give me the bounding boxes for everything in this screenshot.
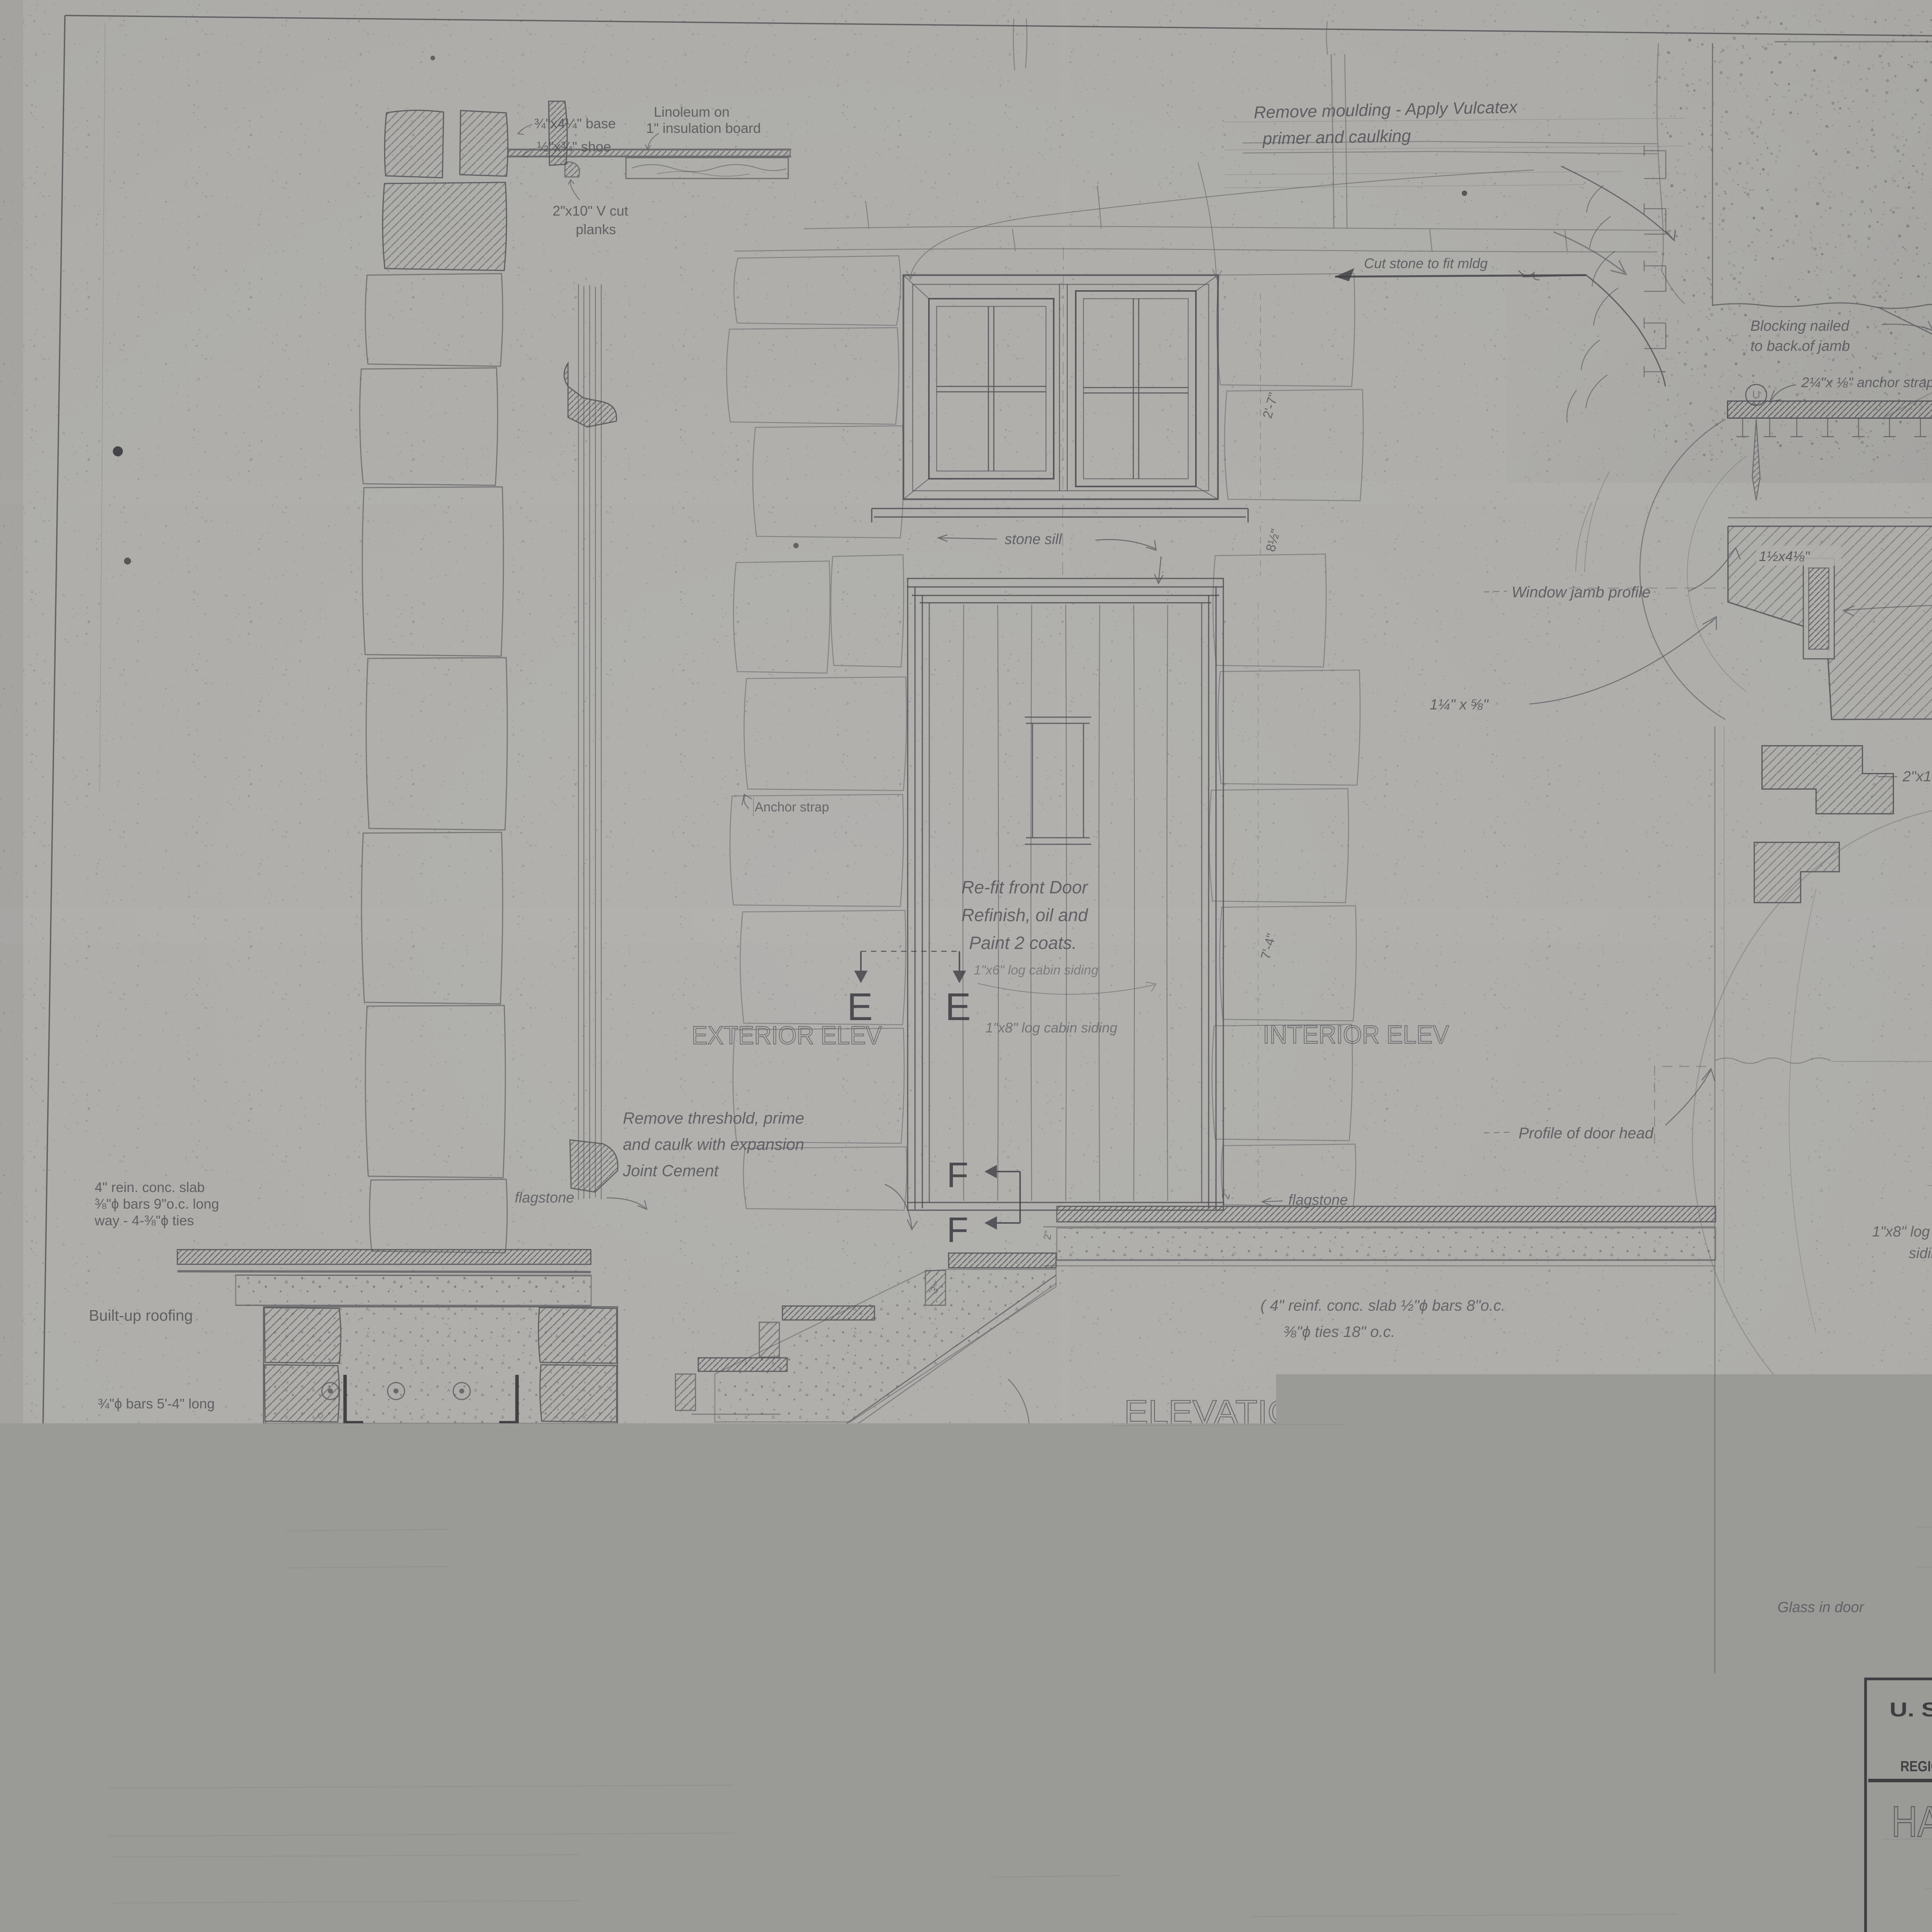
svg-text:Anchor strap: Anchor strap (755, 800, 829, 815)
svg-text:1¼" x ⅝": 1¼" x ⅝" (1430, 697, 1489, 713)
svg-text:PLAN: PLAN (1000, 1836, 1093, 1884)
svg-text:2"x1¼" oak strip: 2"x1¼" oak strip (1902, 769, 1932, 785)
svg-text:½"x¾" shoe: ½"x¾" shoe (537, 139, 611, 155)
svg-text:2" 6¾" 6¾" 2": 2" 6¾" 6¾" 2" (324, 1429, 395, 1442)
svg-text:siding: siding (1909, 1245, 1932, 1262)
svg-text:○: ○ (317, 1409, 324, 1422)
svg-text:INTERIOR ELEV: INTERIOR ELEV (1263, 1020, 1449, 1049)
svg-text:(SOUTH ELEVATION): (SOUTH ELEVATION) (291, 1868, 435, 1893)
svg-text:6" concrete slab reinf. 6-⅝"ϕ: 6" concrete slab reinf. 6-⅝"ϕ (678, 1460, 862, 1476)
svg-text:primer and caulking: primer and caulking (1262, 126, 1411, 148)
svg-text:1½": 1½" (1607, 1826, 1620, 1847)
svg-text:5/16"hole: 5/16"hole (1523, 1830, 1578, 1845)
svg-text:Linoleum on: Linoleum on (654, 104, 730, 120)
svg-text:7": 7" (377, 1462, 387, 1475)
svg-text:2"x10" V cut: 2"x10" V cut (553, 203, 628, 219)
svg-text:EXTERIOR ELEV: EXTERIOR ELEV (692, 1021, 882, 1049)
svg-text:Refinish, oil and: Refinish, oil and (961, 905, 1088, 925)
svg-text:7'-0" to fin. floor: 7'-0" to fin. floor (561, 1556, 575, 1642)
svg-text:6"x6"x⅜"x4'-8" angle: 6"x6"x⅜"x4'-8" angle (100, 1428, 229, 1444)
svg-text:ANCHOR STRAP DETAIL: ANCHOR STRAP DETAIL (1268, 1917, 1660, 1932)
svg-text:2¼"x ⅛" anchor strap: 2¼"x ⅛" anchor strap (1801, 374, 1932, 390)
svg-text:F: F (947, 1155, 968, 1195)
svg-text:1½x4⅛": 1½x4⅛" (1759, 548, 1810, 564)
svg-text:detail for: detail for (1140, 1616, 1194, 1632)
svg-text:moulding: moulding (1140, 1633, 1196, 1649)
svg-text:4" rein. conc. slab: 4" rein. conc. slab (95, 1179, 205, 1195)
svg-text:7": 7" (263, 1462, 273, 1475)
svg-text:1" insulation board: 1" insulation board (646, 120, 761, 136)
svg-text:1'-3": 1'-3" (1364, 1816, 1393, 1832)
svg-text:¾"x4¼" base: ¾"x4¼" base (534, 116, 616, 131)
svg-text:planks: planks (576, 221, 616, 237)
svg-text:Blocking nailed: Blocking nailed (1750, 318, 1850, 334)
svg-text:to back of jamb: to back of jamb (1750, 338, 1850, 354)
svg-text:Window jamb profile: Window jamb profile (1512, 584, 1651, 601)
svg-text:3'-7": 3'-7" (1039, 1725, 1070, 1742)
svg-text:way - 4-⅜"ϕ ties: way - 4-⅜"ϕ ties (94, 1213, 194, 1228)
svg-text:⅜"ϕ bars 9"o.c. long: ⅜"ϕ bars 9"o.c. long (95, 1196, 219, 1212)
svg-text:F: F (947, 1210, 968, 1250)
svg-text:Paint 2 coats.: Paint 2 coats. (969, 933, 1077, 953)
svg-text:1"x8" log cabin siding: 1"x8" log cabin siding (985, 1020, 1117, 1036)
svg-text:⅛"x2¼"anchor strap: ⅛"x2¼"anchor strap (1161, 1493, 1279, 1507)
svg-text:stone sill: stone sill (1005, 531, 1062, 548)
svg-text:Re-fit front Door: Re-fit front Door (961, 877, 1088, 897)
svg-text:Stone sill: Stone sill (931, 1599, 988, 1615)
svg-text:E: E (945, 985, 971, 1029)
svg-text:Built-up roofing: Built-up roofing (89, 1307, 193, 1324)
svg-text:2": 2" (1219, 1189, 1233, 1201)
svg-text:flagstone: flagstone (515, 1190, 574, 1206)
svg-text:½"¼"½": ½"¼"½" (1571, 1803, 1610, 1815)
svg-text:2'-7½": 2'-7½" (340, 1492, 373, 1505)
svg-text:Flagstone treads & landing: Flagstone treads & landing (888, 1783, 1081, 1801)
svg-text:¾"ϕ bars 5'-4" long: ¾"ϕ bars 5'-4" long (98, 1396, 215, 1412)
svg-text:Glass in door: Glass in door (1777, 1599, 1864, 1616)
svg-text:3": 3" (1266, 1901, 1279, 1912)
svg-text:Joint Cement: Joint Cement (622, 1162, 719, 1180)
svg-text:Scale ¾"=1'-0": Scale ¾"=1'-0" (272, 1910, 399, 1932)
svg-text:HARNEY PEAK LOOKOUT: HARNEY PEAK LOOKOUT (1891, 1798, 1932, 1846)
svg-text:and caulk with expansion: and caulk with expansion (623, 1135, 804, 1153)
svg-text:bars long way-⅜"ϕ ties 9"o.c.-: bars long way-⅜"ϕ ties 9"o.c.- (666, 1485, 860, 1501)
svg-text:⅜"ϕ ties 18" o.c.: ⅜"ϕ ties 18" o.c. (1284, 1323, 1395, 1340)
svg-text:1'-5½": 1'-5½" (309, 1462, 342, 1475)
svg-text:1"x6" log cabin siding: 1"x6" log cabin siding (974, 963, 1099, 978)
svg-text:Profile of door head: Profile of door head (1519, 1125, 1654, 1142)
svg-text:1"x8" log cabin: 1"x8" log cabin (1872, 1224, 1932, 1240)
svg-text:( 4" reinf. conc. slab ½"ϕ bar: ( 4" reinf. conc. slab ½"ϕ bars 8"o.c. (1260, 1297, 1505, 1314)
svg-text:C 2¼x⅛" anchor strap: C 2¼x⅛" anchor strap (1358, 1881, 1504, 1898)
svg-text:See full size: See full size (1140, 1599, 1215, 1615)
svg-text:U. S. DEPARTMENT OF AGRICULTUR: U. S. DEPARTMENT OF AGRICULTURE (1889, 1699, 1932, 1721)
svg-text:Remove threshold, prime: Remove threshold, prime (623, 1109, 804, 1127)
svg-text:FULL SIZE DETAILS: FULL SIZE DETAILS (1930, 1517, 1932, 1577)
svg-text:Cut stone to fit mldg: Cut stone to fit mldg (1364, 255, 1488, 271)
svg-text:REGION 2: REGION 2 (1900, 1759, 1932, 1775)
